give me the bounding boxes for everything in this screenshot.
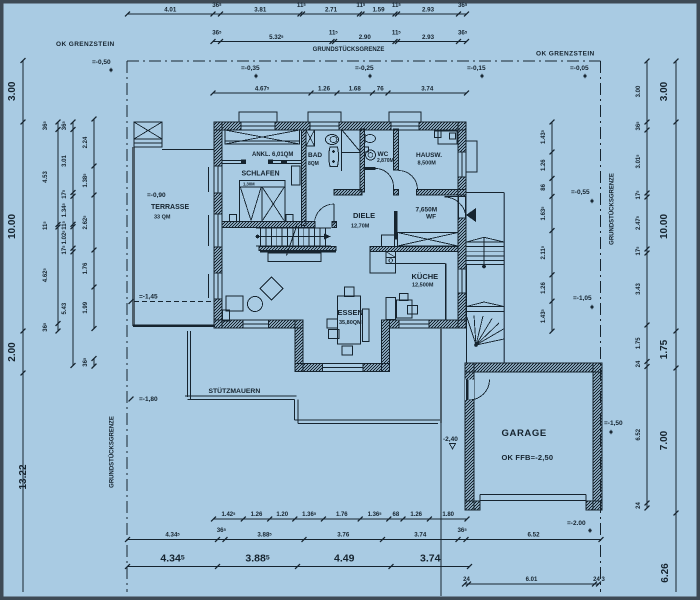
svg-text:STÜTZMAUERN: STÜTZMAUERN xyxy=(209,386,261,395)
svg-text:3.74: 3.74 xyxy=(414,532,427,539)
svg-text:=-0,55: =-0,55 xyxy=(571,189,590,196)
svg-text:76: 76 xyxy=(377,86,384,93)
svg-text:1.68: 1.68 xyxy=(349,86,362,93)
svg-text:1.26: 1.26 xyxy=(318,86,331,93)
svg-text:=-0,50: =-0,50 xyxy=(92,59,111,66)
svg-text:1.26: 1.26 xyxy=(541,159,547,171)
svg-text:6.52: 6.52 xyxy=(527,532,540,539)
svg-text:3.00: 3.00 xyxy=(659,81,670,101)
svg-text:1.76: 1.76 xyxy=(83,262,89,274)
svg-text:=-1,80: =-1,80 xyxy=(139,396,158,403)
svg-text:=-1,45: =-1,45 xyxy=(139,294,158,301)
svg-text:1.75: 1.75 xyxy=(659,339,670,359)
svg-text:35,80QM: 35,80QM xyxy=(339,320,362,326)
svg-text:10.00: 10.00 xyxy=(659,214,670,239)
svg-text:86: 86 xyxy=(541,183,547,190)
svg-text:6.01: 6.01 xyxy=(526,577,538,583)
svg-text:GRUNDSTÜCKSGRENZE: GRUNDSTÜCKSGRENZE xyxy=(609,173,616,245)
svg-text:3.74: 3.74 xyxy=(420,553,441,565)
svg-text:1.80: 1.80 xyxy=(442,512,454,518)
svg-text:2,870M: 2,870M xyxy=(377,158,394,164)
svg-text:24: 24 xyxy=(593,577,600,583)
svg-text:DIELE: DIELE xyxy=(353,211,375,220)
svg-text:SCHLAFEN: SCHLAFEN xyxy=(242,171,280,178)
svg-text:=-0,05: =-0,05 xyxy=(570,65,589,72)
svg-text:TERRASSE: TERRASSE xyxy=(151,204,189,211)
svg-text:2.71: 2.71 xyxy=(325,7,338,14)
svg-text:GRUNDSTÜCKSGRENZE: GRUNDSTÜCKSGRENZE xyxy=(313,46,385,53)
svg-text:6.26: 6.26 xyxy=(660,563,671,583)
svg-text:3.81: 3.81 xyxy=(254,7,267,14)
svg-text:=-0,15: =-0,15 xyxy=(467,65,486,72)
svg-text:OK GRENZSTEIN: OK GRENZSTEIN xyxy=(536,51,595,58)
svg-text:3.00: 3.00 xyxy=(7,81,18,101)
svg-text:2.93: 2.93 xyxy=(422,34,435,41)
svg-text:HAUSW.: HAUSW. xyxy=(416,152,442,159)
svg-text:1.26: 1.26 xyxy=(410,512,422,518)
svg-text:1.75: 1.75 xyxy=(636,337,642,349)
svg-text:2.24: 2.24 xyxy=(83,136,89,148)
svg-text:5.43: 5.43 xyxy=(62,302,68,314)
svg-text:68: 68 xyxy=(393,512,400,518)
svg-text:12,70M: 12,70M xyxy=(351,224,370,230)
svg-text:=-2.00: =-2.00 xyxy=(567,520,586,527)
svg-text:1.59: 1.59 xyxy=(372,7,385,14)
svg-text:1.99: 1.99 xyxy=(83,301,89,313)
svg-text:3.01: 3.01 xyxy=(62,155,68,167)
svg-text:=-1,50: =-1,50 xyxy=(604,420,623,427)
svg-text:3.76: 3.76 xyxy=(337,532,350,539)
svg-text:33 QM: 33 QM xyxy=(154,215,171,221)
svg-text:GRUNDSTÜCKSGRENZE: GRUNDSTÜCKSGRENZE xyxy=(109,416,116,488)
svg-text:KÜCHE: KÜCHE xyxy=(412,272,439,281)
svg-text:10.00: 10.00 xyxy=(7,214,18,239)
svg-text:2.93: 2.93 xyxy=(422,7,435,14)
svg-text:13.22: 13.22 xyxy=(18,464,29,489)
svg-text:1.26: 1.26 xyxy=(541,282,547,294)
svg-text:24: 24 xyxy=(463,577,470,583)
svg-text:WF: WF xyxy=(426,214,436,221)
svg-text:BAD: BAD xyxy=(308,152,322,159)
svg-text:24: 24 xyxy=(636,360,642,367)
svg-text:4.53: 4.53 xyxy=(43,171,49,183)
svg-text:=-1,05: =-1,05 xyxy=(573,295,592,302)
svg-text:2.00: 2.00 xyxy=(7,342,18,362)
svg-text:1.26: 1.26 xyxy=(251,512,263,518)
svg-text:7,650M: 7,650M xyxy=(416,207,438,214)
svg-text:-2,40: -2,40 xyxy=(443,436,458,443)
svg-text:1,30M: 1,30M xyxy=(243,182,255,187)
svg-text:3.74: 3.74 xyxy=(421,86,434,93)
svg-text:1.20: 1.20 xyxy=(276,512,288,518)
svg-text:3.00: 3.00 xyxy=(636,85,642,97)
svg-text:OK FFB=-2,50: OK FFB=-2,50 xyxy=(502,453,554,462)
svg-text:8,500M: 8,500M xyxy=(418,161,437,167)
svg-text:2.90: 2.90 xyxy=(359,34,372,41)
svg-text:3.43: 3.43 xyxy=(636,283,642,295)
svg-text:=-0,90: =-0,90 xyxy=(147,192,166,199)
svg-text:4.01: 4.01 xyxy=(164,7,177,14)
svg-text:OK GRENZSTEIN: OK GRENZSTEIN xyxy=(56,41,115,48)
svg-text:=-0,25: =-0,25 xyxy=(355,65,374,72)
svg-text:GARAGE: GARAGE xyxy=(502,428,547,439)
svg-text:8QM: 8QM xyxy=(308,161,319,167)
svg-text:ANKL. 6,01QM: ANKL. 6,01QM xyxy=(252,152,293,158)
svg-text:24: 24 xyxy=(636,502,642,509)
svg-text:7.00: 7.00 xyxy=(659,430,670,450)
svg-text:=-0,35: =-0,35 xyxy=(241,65,260,72)
svg-text:WC: WC xyxy=(378,151,389,158)
svg-text:12,500M: 12,500M xyxy=(412,283,434,289)
svg-text:ESSEN: ESSEN xyxy=(338,308,363,317)
svg-text:6.52: 6.52 xyxy=(636,428,642,440)
svg-text:1.76: 1.76 xyxy=(336,512,348,518)
svg-text:4.49: 4.49 xyxy=(334,553,355,565)
